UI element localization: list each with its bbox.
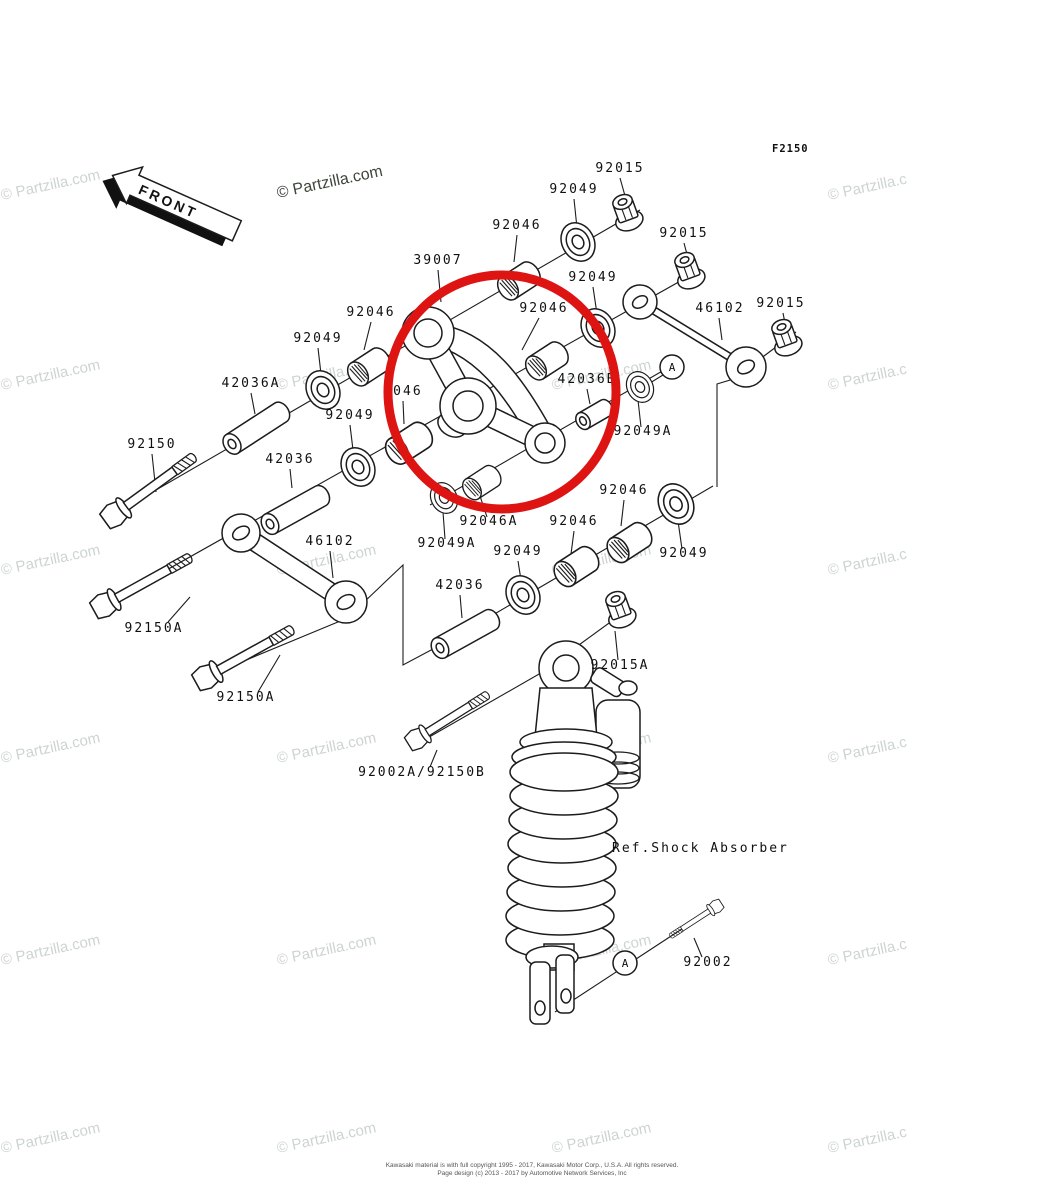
watermark: © Partzilla.com bbox=[275, 729, 377, 767]
watermark: © Partzilla.com bbox=[275, 931, 377, 969]
detail-marker-a-lower: A bbox=[613, 951, 637, 975]
part-label-92046a: 92046A bbox=[460, 514, 519, 529]
shock-spring bbox=[506, 753, 618, 959]
collar-42036-lower bbox=[428, 606, 503, 661]
watermark: © Partzilla.c bbox=[826, 733, 909, 766]
watermark: © Partzilla.c bbox=[826, 1123, 909, 1156]
bolt-92002 bbox=[667, 898, 725, 942]
bolt-92002a-92150b bbox=[403, 686, 494, 753]
part-label-92049: 92049 bbox=[659, 546, 708, 561]
part-label-92150: 92150 bbox=[127, 437, 176, 452]
nut-92015-right bbox=[766, 316, 805, 360]
part-label-42036a: 42036A bbox=[222, 376, 281, 391]
watermark: © Partzilla.com bbox=[0, 931, 102, 969]
watermark: © Partzilla.c bbox=[826, 935, 909, 968]
watermark: © Partzilla.com bbox=[550, 1119, 652, 1157]
part-label-92015: 92015 bbox=[659, 226, 708, 241]
part-label-39007: 39007 bbox=[413, 253, 462, 268]
footer-copyright-line1: Kawasaki material is with full copyright… bbox=[386, 1162, 679, 1169]
bolt-92150a-upper bbox=[88, 546, 197, 621]
part-label-46102: 46102 bbox=[305, 534, 354, 549]
part-label-92049: 92049 bbox=[293, 331, 342, 346]
part-label-92049: 92049 bbox=[568, 270, 617, 285]
detail-marker-a-upper: A bbox=[660, 355, 684, 379]
bearing-92046a bbox=[459, 462, 505, 503]
watermark: © Partzilla.com bbox=[0, 166, 102, 204]
watermark: © Partzilla.com bbox=[0, 356, 102, 394]
diagram-code: F2150 bbox=[772, 143, 809, 155]
watermark: © Partzilla.com bbox=[0, 1119, 102, 1157]
nut-92015-mid bbox=[669, 249, 708, 293]
watermark: © Partzilla.com bbox=[275, 1119, 377, 1157]
watermark: © Partzilla.com bbox=[0, 541, 102, 579]
watermark: © Partzilla.c bbox=[826, 170, 909, 203]
washer-92049-bottom-right bbox=[651, 478, 700, 531]
collar-42036-upper bbox=[258, 482, 333, 537]
bolt-92150a-lower bbox=[190, 618, 299, 693]
bearing-92046-bottom-1 bbox=[550, 543, 604, 591]
parts-diagram-page: © Partzilla.com © Partzilla.com © Partzi… bbox=[0, 0, 1037, 1200]
part-label-92049: 92049 bbox=[549, 182, 598, 197]
part-label-92049: 92049 bbox=[325, 408, 374, 423]
part-label-92015: 92015 bbox=[595, 161, 644, 176]
watermark: © Partzilla.com bbox=[275, 163, 384, 202]
washer-92049-left-lower bbox=[334, 442, 381, 492]
watermark-grid: © Partzilla.com © Partzilla.com © Partzi… bbox=[0, 163, 909, 1157]
part-label-92046: 92046 bbox=[599, 483, 648, 498]
part-label-42036: 42036 bbox=[435, 578, 484, 593]
front-arrow: FRONT bbox=[94, 154, 245, 257]
part-label-92046: 92046 bbox=[346, 305, 395, 320]
bolt-92150 bbox=[98, 446, 202, 531]
nut-92015-top bbox=[607, 191, 646, 235]
ref-shock-absorber-note: Ref.Shock Absorber bbox=[612, 841, 789, 856]
watermark: © Partzilla.c bbox=[826, 545, 909, 578]
collar-42036a bbox=[219, 399, 293, 458]
part-label-92015: 92015 bbox=[756, 296, 805, 311]
parts-diagram: © Partzilla.com © Partzilla.com © Partzi… bbox=[0, 0, 1037, 1200]
part-label-92002a-92150b: 92002A/92150B bbox=[358, 765, 486, 780]
part-label-92150a: 92150A bbox=[217, 690, 276, 705]
part-label-92049a: 92049A bbox=[418, 536, 477, 551]
part-label-92046: 92046 bbox=[519, 301, 568, 316]
part-label-92015a: 92015A bbox=[591, 658, 650, 673]
footer: Kawasaki material is with full copyright… bbox=[386, 1162, 679, 1177]
part-label-92049a: 92049A bbox=[614, 424, 673, 439]
watermark: © Partzilla.c bbox=[826, 360, 909, 393]
washer-92049-top bbox=[554, 217, 601, 267]
part-label-46102: 46102 bbox=[695, 301, 744, 316]
detail-marker-a-lower-label: A bbox=[622, 957, 629, 970]
part-label-42036: 42036 bbox=[265, 452, 314, 467]
part-label-92046: 92046 bbox=[492, 218, 541, 233]
part-label-42036b: 42036B bbox=[558, 372, 617, 387]
watermark: © Partzilla.com bbox=[0, 729, 102, 767]
detail-marker-a-upper-label: A bbox=[669, 361, 676, 374]
part-label-92046: 92046 bbox=[549, 514, 598, 529]
shock-clevis bbox=[526, 944, 578, 1024]
washer-92049-bottom bbox=[499, 570, 546, 620]
part-label-92049: 92049 bbox=[493, 544, 542, 559]
part-label-92150a: 92150A bbox=[125, 621, 184, 636]
part-label-92002: 92002 bbox=[683, 955, 732, 970]
footer-copyright-line2: Page design (c) 2013 - 2017 by Automotiv… bbox=[437, 1170, 627, 1177]
tie-rod-46102-lower bbox=[222, 514, 367, 623]
